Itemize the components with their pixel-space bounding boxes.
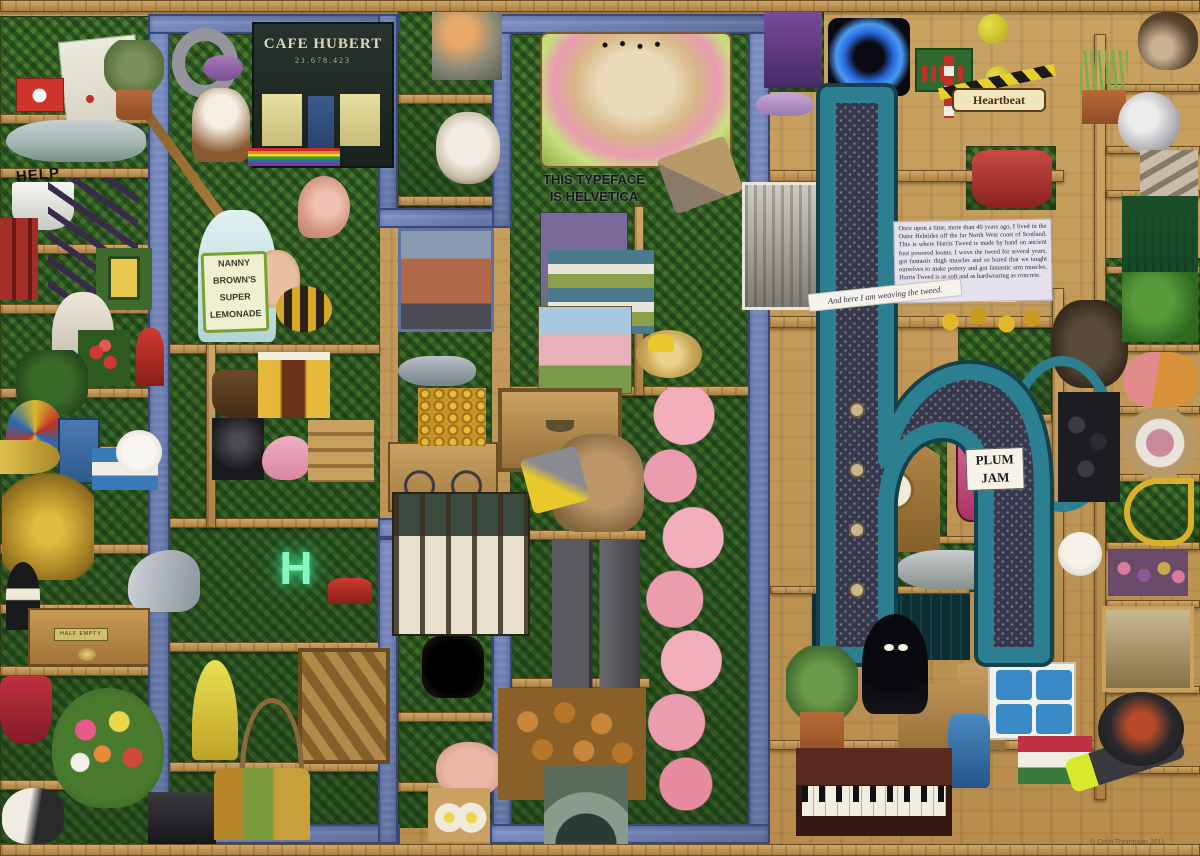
neon-h-sign: H xyxy=(268,530,324,606)
cafe-phone-number: 21.678.423 xyxy=(256,56,390,65)
yellow-window xyxy=(108,256,140,300)
red-toy-car xyxy=(328,578,372,604)
sweets-box xyxy=(1108,550,1188,596)
lemonade-label-line4: LEMONADE xyxy=(206,305,267,324)
shrimp-rocks xyxy=(432,12,502,80)
pigtail-plate xyxy=(1122,408,1198,478)
shelf-bar xyxy=(168,518,380,528)
guinea-pig xyxy=(2,788,64,844)
lemonade-label-line1: NANNY xyxy=(204,254,265,273)
artist-credit: © Colin Thompson 2011 xyxy=(1090,839,1198,846)
helvetica-poster: THIS TYPEFACE IS HELVETICA xyxy=(530,172,658,206)
beer-glasses xyxy=(258,352,330,418)
amber-jars xyxy=(214,768,310,840)
half-empty-drawer-plate: HALF EMPTY xyxy=(54,628,108,641)
shelf-bar xyxy=(398,712,494,722)
golden-harp xyxy=(1124,478,1194,546)
blue-glass-jar xyxy=(948,714,990,788)
rainbow-strip xyxy=(248,148,340,166)
sandwich-flies xyxy=(598,38,668,52)
white-fox-face xyxy=(436,112,500,184)
mini-yellow-hat xyxy=(648,334,674,352)
ham-joint xyxy=(1124,352,1198,408)
rosemary-herb xyxy=(104,40,164,94)
black-speaker xyxy=(212,418,264,480)
hedgehog xyxy=(1138,12,1198,70)
barn-door xyxy=(298,648,390,764)
tennis-ball xyxy=(978,14,1008,44)
bbq-grill xyxy=(1098,692,1184,766)
sign-speech xyxy=(996,704,1032,734)
boiled-eggs xyxy=(428,788,490,842)
shelf-bar xyxy=(398,94,494,104)
plum-jam-label-line1: PLUM xyxy=(966,450,1023,469)
lowercase-h-letter xyxy=(780,60,1100,680)
shelf-bar xyxy=(0,666,152,676)
shelf-bar xyxy=(0,844,1200,856)
shelf-bar xyxy=(398,196,494,206)
cafe-window-right xyxy=(340,94,380,146)
monster-eye xyxy=(898,644,908,651)
monster-eye xyxy=(884,644,894,651)
herb-pot-foliage xyxy=(786,646,858,722)
awesome-alphabet-h-artwork: CAFE HUBERT 21.678.423 THIS TYPEFACE IS … xyxy=(0,0,1200,856)
rosemary-pot xyxy=(116,90,152,120)
french-horn xyxy=(2,468,94,580)
red-books xyxy=(0,218,38,300)
silver-coin xyxy=(1118,92,1180,154)
white-fluff xyxy=(116,430,162,474)
grey-trout xyxy=(398,356,476,386)
drawer-handle xyxy=(546,420,574,432)
hollyhock-flowers xyxy=(638,388,730,828)
mini-staircase xyxy=(308,420,374,482)
cafe-door xyxy=(308,96,334,156)
terraced-houses-picture xyxy=(398,228,494,332)
plum-jam-label: PLUM JAM xyxy=(965,447,1024,491)
brown-boots xyxy=(212,370,260,418)
fire-hydrant xyxy=(136,328,164,386)
plum-jam-label-line2: JAM xyxy=(967,468,1024,487)
purple-bug xyxy=(203,55,243,81)
hk-flag-flower xyxy=(31,87,48,104)
capital-h-right-stile xyxy=(748,14,770,844)
shelf-bar xyxy=(0,0,1200,12)
helvetica-poster-line1: THIS TYPEFACE xyxy=(530,172,658,189)
drawer-knob xyxy=(78,648,96,661)
lemonade-label-line2: BROWN'S xyxy=(204,271,265,290)
herb-leaves-photo xyxy=(1122,272,1198,342)
hobbit-door xyxy=(544,766,628,844)
tudor-house xyxy=(392,492,530,636)
map-pin xyxy=(86,95,94,103)
cafe-hubert-sign: CAFE HUBERT xyxy=(256,36,390,53)
dark-hole xyxy=(422,636,484,698)
sign-vision xyxy=(1036,704,1072,734)
shadow-monster xyxy=(862,614,928,714)
piano-keys-black xyxy=(802,786,946,802)
herring-fish xyxy=(6,120,146,162)
heartbeat-sign: Heartbeat xyxy=(952,88,1046,112)
capital-h-top-beam-right xyxy=(490,14,770,34)
lemonade-bottle-label: NANNY BROWN'S SUPER LEMONADE xyxy=(201,251,270,333)
pink-ear xyxy=(298,176,350,238)
hornet xyxy=(276,286,332,332)
honeycomb xyxy=(418,388,486,446)
red-handbag xyxy=(0,676,52,744)
chimney-pipes xyxy=(552,540,640,704)
pink-cottage-photo xyxy=(538,306,632,394)
hanging-flower-basket xyxy=(52,688,164,808)
dog-picture xyxy=(1102,606,1194,692)
basset-hound xyxy=(192,88,250,162)
cafe-window-left xyxy=(262,94,302,146)
lemonade-label-line3: SUPER xyxy=(205,288,266,307)
helvetica-poster-line2: IS HELVETICA xyxy=(530,189,658,206)
black-radio xyxy=(148,792,216,844)
